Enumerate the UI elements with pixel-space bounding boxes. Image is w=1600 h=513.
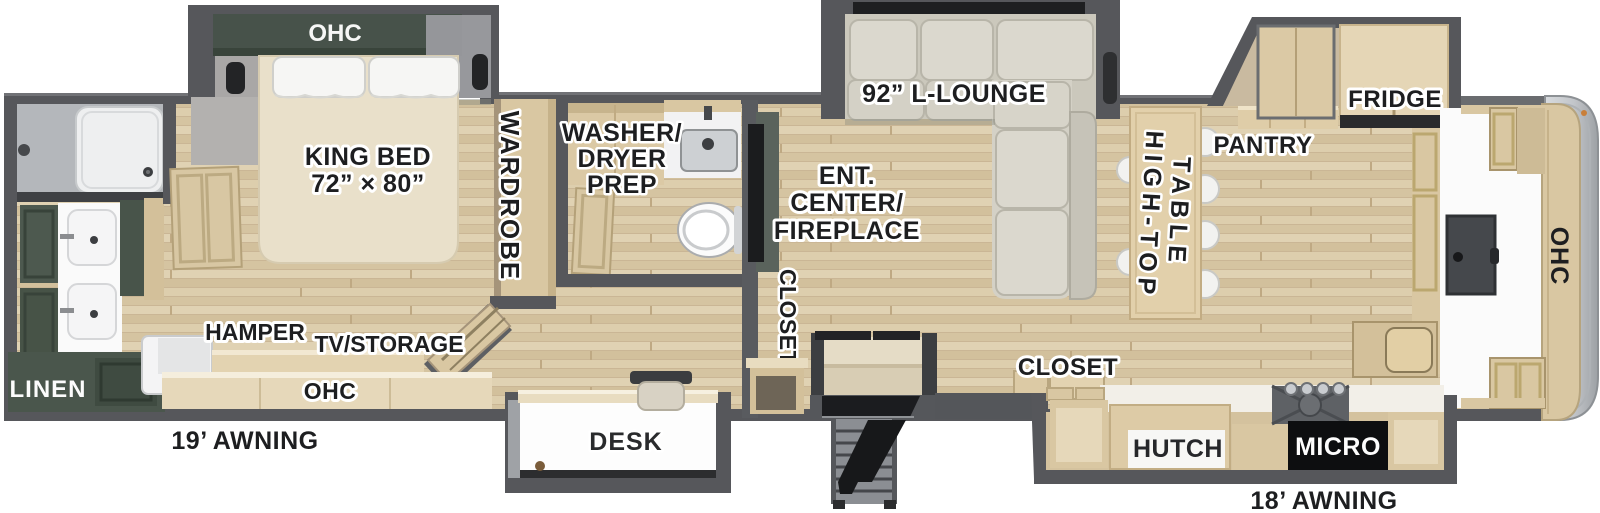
svg-text:HAMPER: HAMPER (205, 319, 305, 345)
svg-text:TABLE: TABLE (1162, 156, 1196, 269)
svg-text:FRIDGE: FRIDGE (1348, 86, 1442, 113)
svg-text:PREP: PREP (587, 171, 657, 199)
svg-text:CLOSET: CLOSET (1018, 354, 1118, 381)
svg-text:18’ AWNING: 18’ AWNING (1250, 487, 1397, 513)
svg-text:OHC: OHC (308, 20, 361, 47)
svg-text:OHC: OHC (304, 378, 357, 404)
svg-text:PANTRY: PANTRY (1214, 132, 1313, 159)
svg-text:KING BED: KING BED (305, 143, 431, 171)
svg-text:TV/STORAGE: TV/STORAGE (314, 331, 463, 357)
svg-text:HUTCH: HUTCH (1133, 435, 1223, 463)
svg-text:DESK: DESK (589, 428, 662, 456)
svg-text:FIREPLACE: FIREPLACE (774, 217, 920, 245)
svg-text:MICRO: MICRO (1295, 433, 1381, 461)
svg-text:CENTER/: CENTER/ (790, 189, 903, 217)
svg-text:LINEN: LINEN (10, 376, 87, 403)
svg-text:ENT.: ENT. (819, 162, 875, 190)
svg-text:92” L-LOUNGE: 92” L-LOUNGE (862, 80, 1046, 108)
svg-text:DRYER: DRYER (577, 145, 666, 173)
svg-text:19’ AWNING: 19’ AWNING (171, 427, 318, 455)
svg-text:WASHER/: WASHER/ (562, 119, 682, 147)
svg-text:OHC: OHC (1545, 227, 1573, 286)
svg-text:WARDROBE: WARDROBE (495, 111, 525, 282)
svg-text:CLOSET: CLOSET (775, 269, 801, 365)
svg-text:72” × 80”: 72” × 80” (311, 170, 425, 198)
